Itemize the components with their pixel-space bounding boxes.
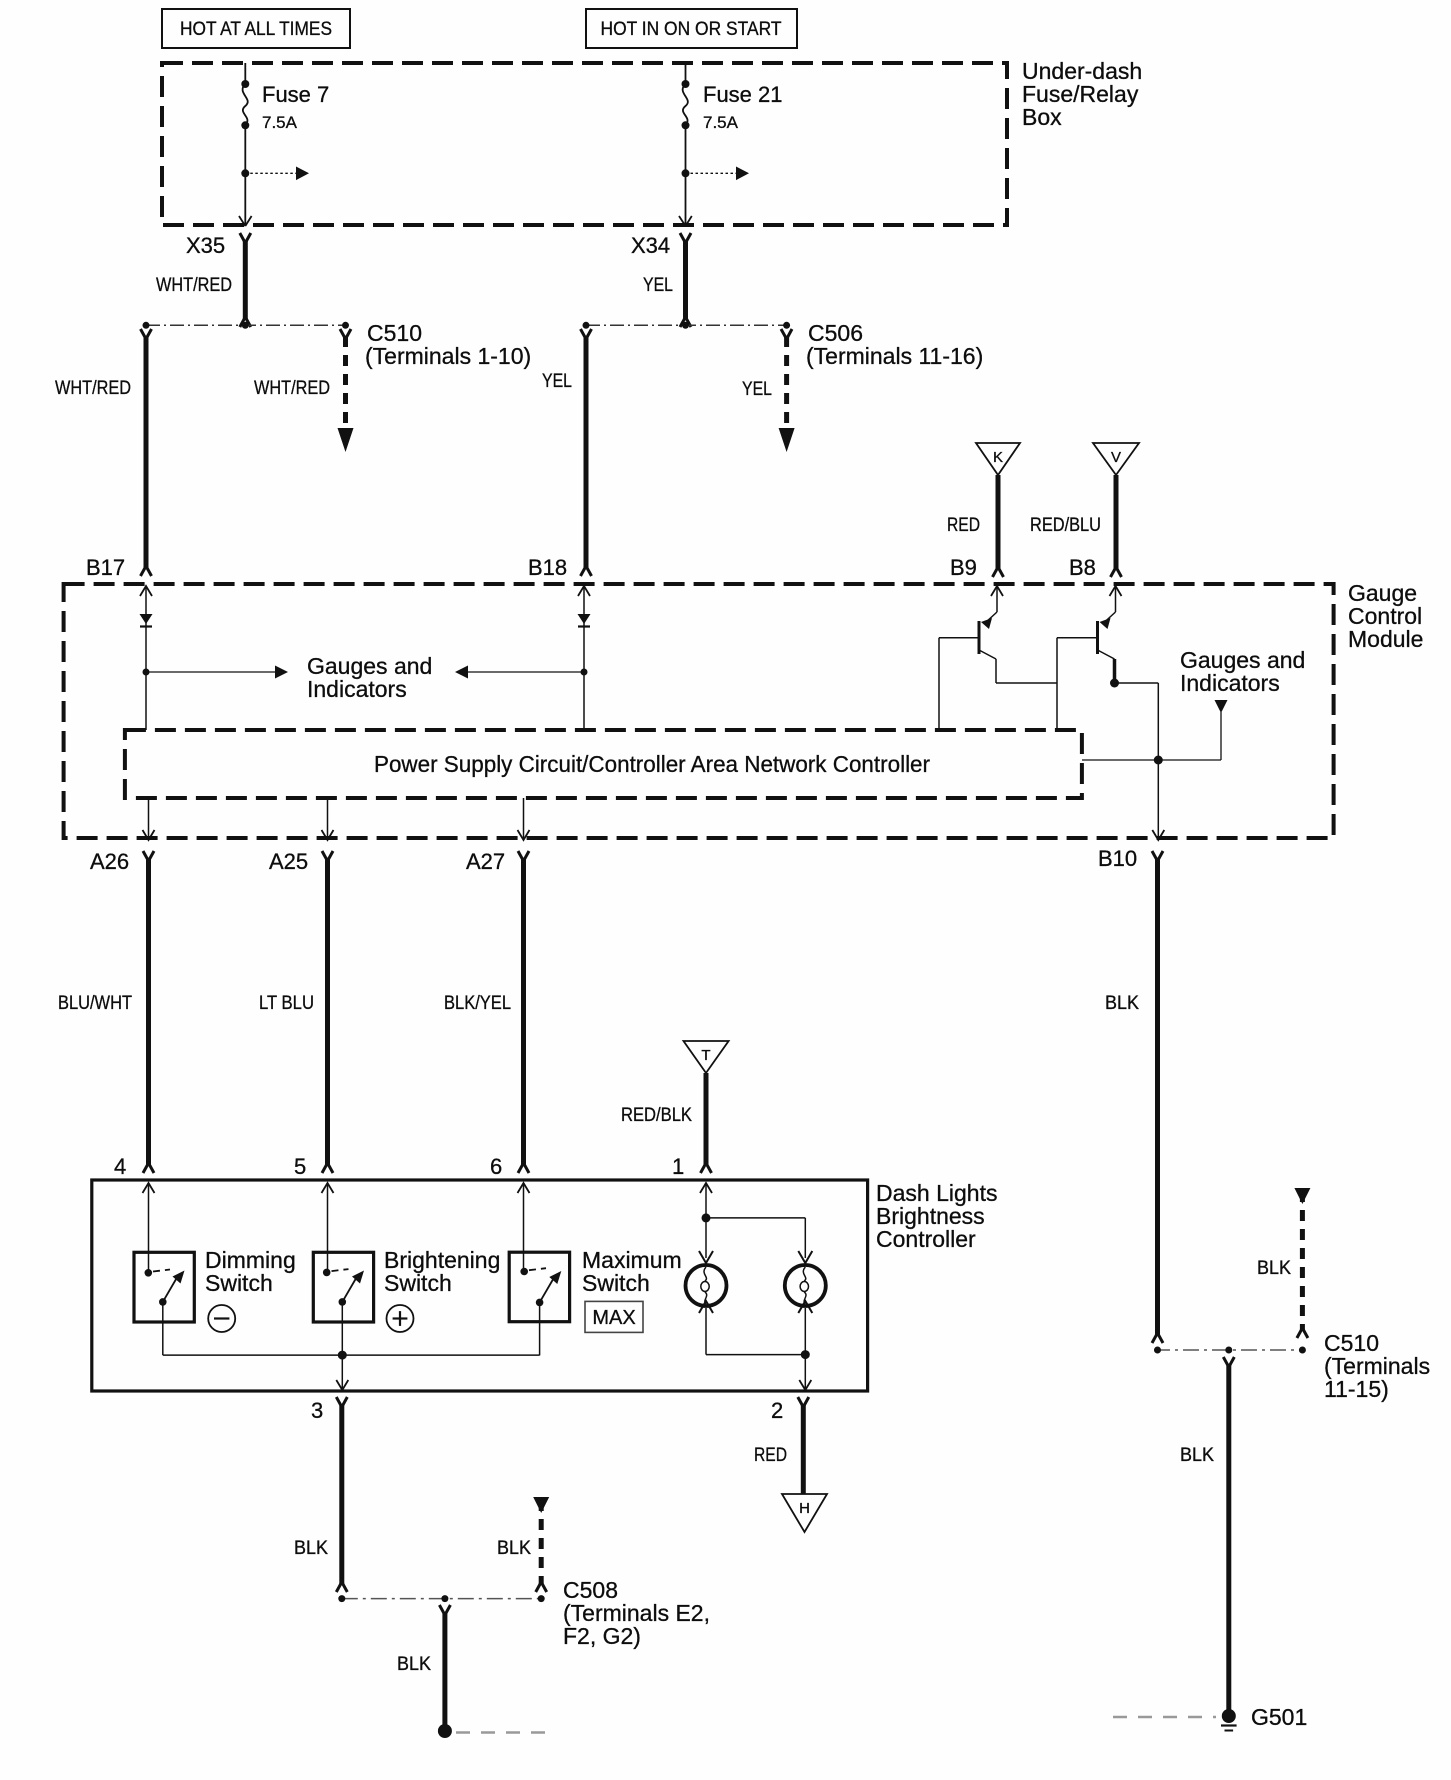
svg-text:C510(Terminals 1-10): C510(Terminals 1-10)	[365, 320, 531, 369]
svg-text:BLK: BLK	[1180, 1445, 1214, 1466]
svg-text:Under-dashFuse/RelayBox: Under-dashFuse/RelayBox	[1022, 58, 1142, 130]
svg-text:BLK: BLK	[1257, 1258, 1291, 1279]
svg-text:BLK/YEL: BLK/YEL	[444, 993, 511, 1014]
svg-text:3: 3	[311, 1398, 323, 1423]
svg-text:WHT/RED: WHT/RED	[156, 275, 232, 296]
svg-text:BrighteningSwitch: BrighteningSwitch	[384, 1247, 500, 1296]
svg-text:YEL: YEL	[542, 371, 572, 392]
svg-text:A25: A25	[269, 849, 308, 874]
svg-text:T: T	[701, 1047, 710, 1064]
svg-text:B17: B17	[86, 555, 125, 580]
svg-text:RED/BLU: RED/BLU	[1030, 515, 1101, 536]
svg-text:7.5A: 7.5A	[262, 113, 298, 132]
svg-text:BLU/WHT: BLU/WHT	[58, 993, 132, 1014]
svg-text:Dash LightsBrightnessControlle: Dash LightsBrightnessController	[876, 1180, 997, 1252]
svg-text:YEL: YEL	[742, 379, 772, 400]
svg-text:H: H	[799, 1500, 810, 1517]
svg-text:RED: RED	[754, 1445, 787, 1466]
svg-text:2: 2	[771, 1398, 783, 1423]
svg-text:K: K	[993, 449, 1003, 466]
svg-text:HOT IN ON OR START: HOT IN ON OR START	[601, 19, 782, 40]
svg-text:B9: B9	[950, 555, 977, 580]
svg-text:GaugeControlModule: GaugeControlModule	[1348, 580, 1423, 652]
svg-text:BLK: BLK	[294, 1538, 328, 1559]
svg-text:WHT/RED: WHT/RED	[55, 378, 131, 399]
svg-text:MaximumSwitch: MaximumSwitch	[582, 1247, 682, 1296]
svg-text:X35: X35	[186, 233, 225, 258]
svg-text:LT BLU: LT BLU	[259, 993, 314, 1014]
svg-text:BLK: BLK	[397, 1654, 431, 1675]
svg-text:5: 5	[294, 1154, 306, 1179]
svg-text:4: 4	[114, 1154, 126, 1179]
svg-text:BLK: BLK	[1105, 993, 1139, 1014]
svg-text:Gauges andIndicators: Gauges andIndicators	[1180, 647, 1305, 696]
svg-text:DimmingSwitch: DimmingSwitch	[205, 1247, 296, 1296]
svg-text:RED/BLK: RED/BLK	[621, 1105, 692, 1126]
svg-text:BLK: BLK	[497, 1538, 531, 1559]
svg-text:6: 6	[490, 1154, 502, 1179]
svg-text:Gauges andIndicators: Gauges andIndicators	[307, 653, 432, 702]
svg-text:C510(Terminals11-15): C510(Terminals11-15)	[1324, 1330, 1430, 1402]
svg-text:B18: B18	[528, 555, 567, 580]
svg-text:YEL: YEL	[643, 275, 673, 296]
svg-text:C506(Terminals 11-16): C506(Terminals 11-16)	[806, 320, 983, 369]
svg-text:RED: RED	[947, 515, 980, 536]
svg-text:WHT/RED: WHT/RED	[254, 378, 330, 399]
svg-text:1: 1	[672, 1154, 684, 1179]
svg-text:X34: X34	[631, 233, 670, 258]
svg-text:G501: G501	[1251, 1704, 1307, 1730]
svg-text:A27: A27	[466, 849, 505, 874]
svg-text:V: V	[1111, 449, 1121, 466]
svg-text:B8: B8	[1069, 555, 1096, 580]
svg-text:HOT AT ALL TIMES: HOT AT ALL TIMES	[180, 19, 332, 40]
svg-text:MAX: MAX	[592, 1307, 635, 1329]
svg-text:7.5A: 7.5A	[703, 113, 739, 132]
svg-text:A26: A26	[90, 849, 129, 874]
svg-text:C508(Terminals E2,F2, G2): C508(Terminals E2,F2, G2)	[563, 1577, 710, 1649]
svg-text:Power Supply Circuit/Controlle: Power Supply Circuit/Controller Area Net…	[374, 751, 930, 777]
svg-text:Fuse 21: Fuse 21	[703, 82, 783, 107]
svg-text:Fuse 7: Fuse 7	[262, 82, 329, 107]
svg-text:B10: B10	[1098, 846, 1137, 871]
